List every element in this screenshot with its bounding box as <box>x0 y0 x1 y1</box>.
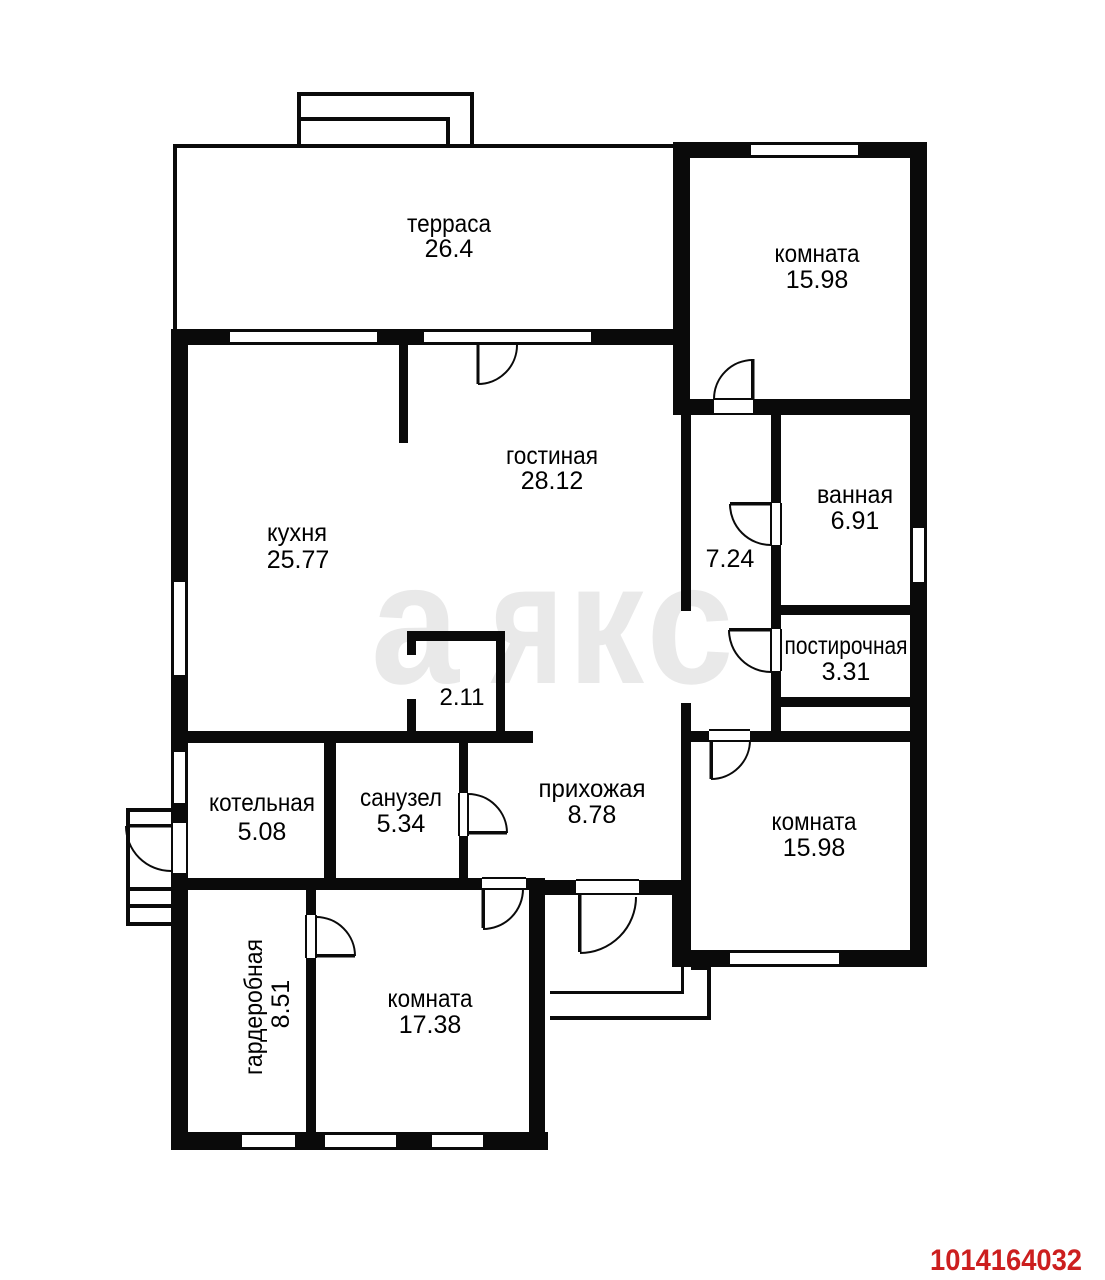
svg-text:5.08: 5.08 <box>238 818 287 846</box>
svg-text:25.77: 25.77 <box>267 546 330 574</box>
svg-text:санузел: санузел <box>360 784 442 812</box>
svg-text:1014164032: 1014164032 <box>930 1244 1082 1277</box>
svg-text:2.11: 2.11 <box>440 684 485 711</box>
svg-text:прихожая: прихожая <box>539 775 646 803</box>
svg-text:15.98: 15.98 <box>786 266 849 294</box>
svg-text:гардеробная: гардеробная <box>240 939 268 1075</box>
svg-text:28.12: 28.12 <box>521 467 584 495</box>
svg-text:8.78: 8.78 <box>568 801 617 829</box>
svg-text:кухня: кухня <box>267 519 327 547</box>
svg-text:8.51: 8.51 <box>267 980 295 1029</box>
svg-text:к: к <box>568 526 644 720</box>
svg-text:комната: комната <box>772 808 857 836</box>
svg-text:комната: комната <box>775 240 860 268</box>
svg-text:ванная: ванная <box>817 481 893 509</box>
svg-text:постирочная: постирочная <box>785 632 908 660</box>
svg-text:6.91: 6.91 <box>831 507 880 535</box>
svg-text:комната: комната <box>388 985 473 1013</box>
svg-text:3.31: 3.31 <box>822 658 871 686</box>
svg-text:17.38: 17.38 <box>399 1011 462 1039</box>
svg-text:26.4: 26.4 <box>425 235 474 263</box>
svg-text:котельная: котельная <box>209 789 315 817</box>
svg-text:гостиная: гостиная <box>506 442 598 470</box>
svg-text:15.98: 15.98 <box>783 834 846 862</box>
svg-text:7.24: 7.24 <box>706 545 755 573</box>
svg-text:5.34: 5.34 <box>377 810 426 838</box>
svg-text:терраса: терраса <box>407 210 491 238</box>
